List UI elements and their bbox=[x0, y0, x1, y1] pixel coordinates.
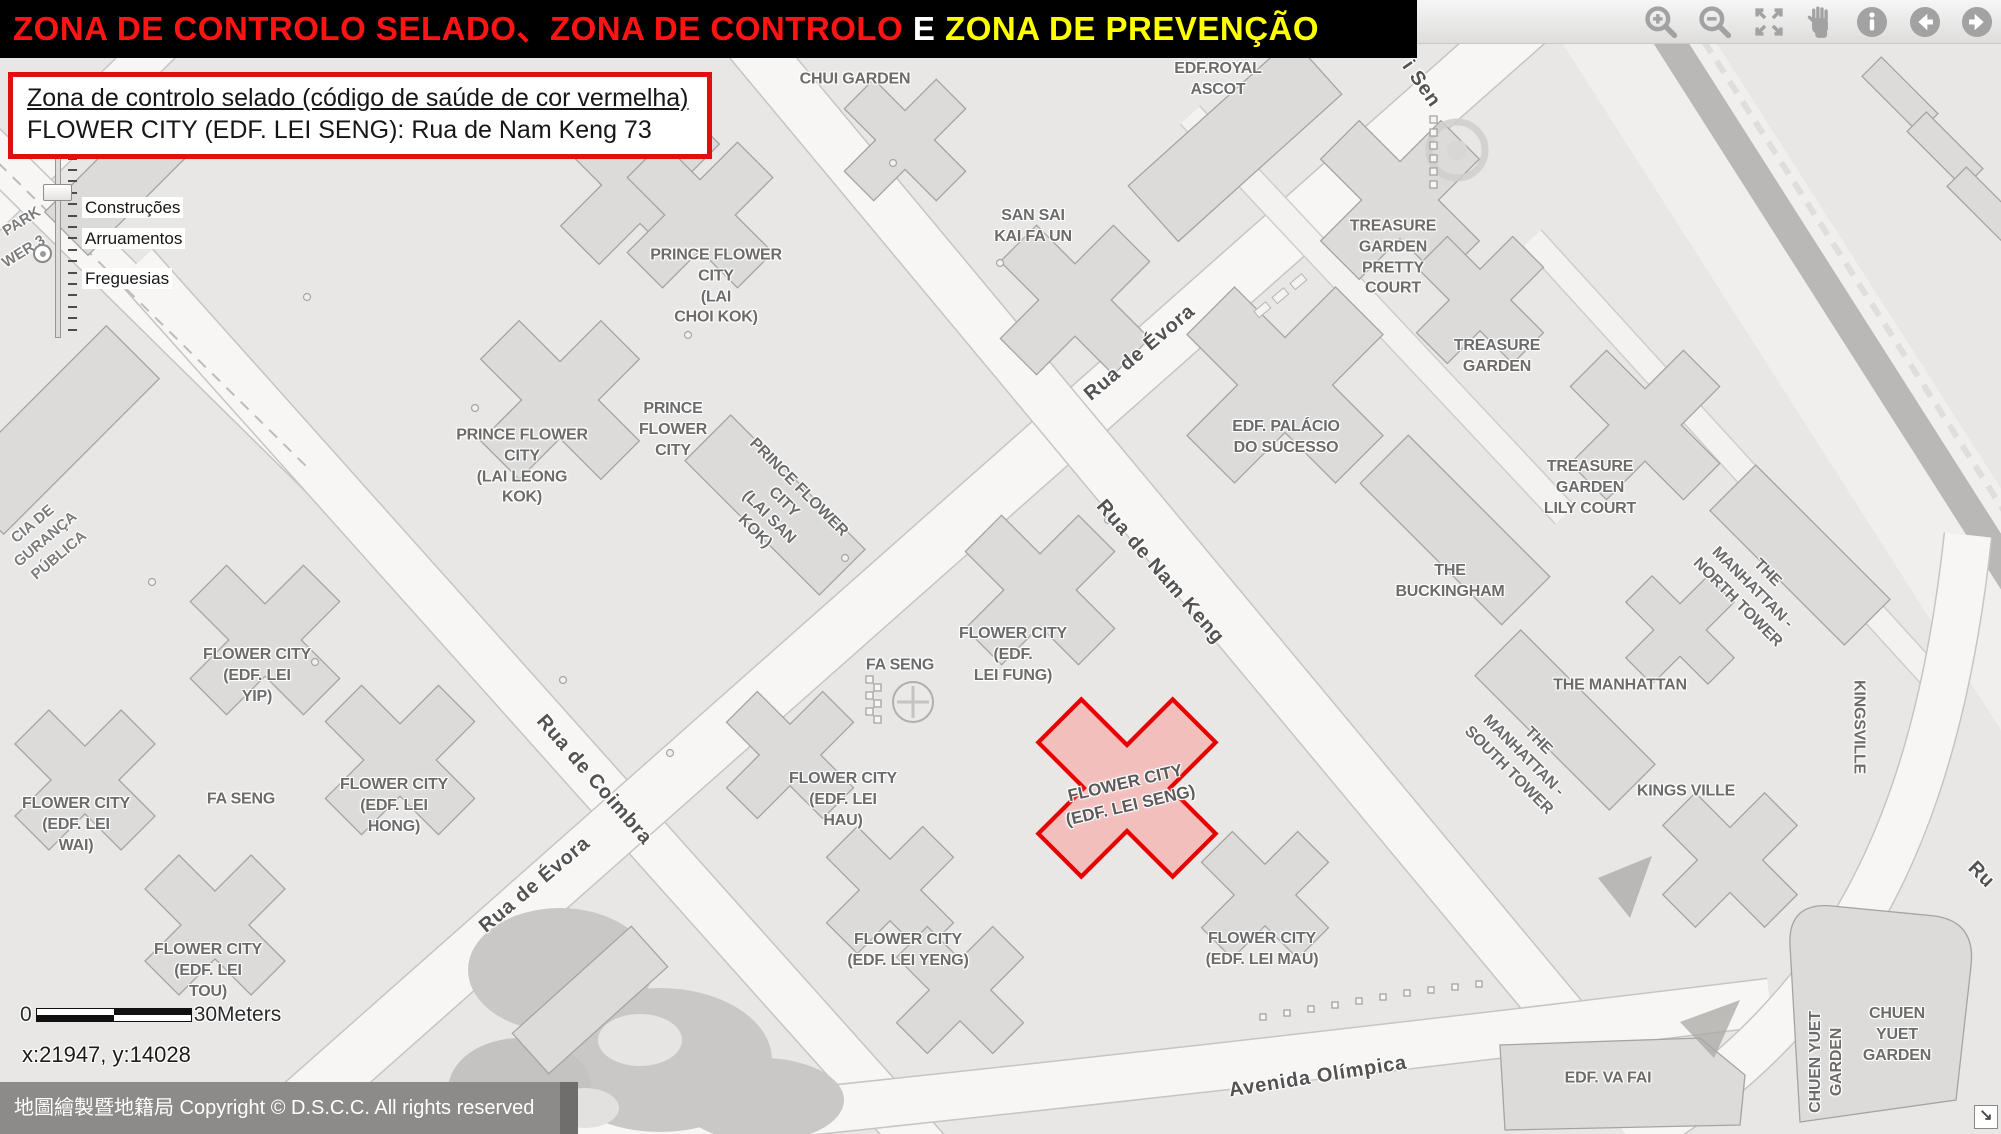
title-segment: ZONA DE PREVENÇÃO bbox=[935, 10, 1319, 47]
slider-tick bbox=[68, 283, 77, 285]
zoom-slider-handle[interactable] bbox=[43, 184, 72, 201]
next-view-icon bbox=[1958, 3, 1996, 41]
zoom-in-icon bbox=[1642, 3, 1680, 41]
identify-icon bbox=[1853, 3, 1891, 41]
slider-tick bbox=[68, 237, 77, 239]
sealed-zone-info-box: Zona de controlo selado (código de saúde… bbox=[8, 72, 712, 159]
scale-bar-graphic bbox=[36, 1008, 192, 1022]
map-canvas[interactable] bbox=[0, 0, 2001, 1134]
copyright-footer: 地圖繪製暨地籍局 Copyright © D.S.C.C. All rights… bbox=[0, 1082, 560, 1134]
title-bar: ZONA DE CONTROLO SELADO、ZONA DE CONTROLO… bbox=[0, 0, 1417, 58]
zoom-in-button[interactable] bbox=[1642, 3, 1680, 41]
slider-tick bbox=[68, 294, 77, 296]
slider-tick bbox=[68, 329, 77, 331]
previous-view-button[interactable] bbox=[1906, 3, 1944, 41]
previous-view-icon bbox=[1906, 3, 1944, 41]
zoom-out-icon bbox=[1696, 3, 1734, 41]
corner-resize-button[interactable]: ↘ bbox=[1974, 1105, 1998, 1129]
slider-tick bbox=[68, 215, 77, 217]
footer-end-cap bbox=[560, 1082, 578, 1134]
title-segment: ZONA DE CONTROLO SELADO、ZONA DE CONTROLO bbox=[13, 10, 913, 47]
scale-bar-start: 0 bbox=[20, 1003, 32, 1026]
slider-tick bbox=[68, 249, 77, 251]
legend-item-freguesias: Freguesias bbox=[82, 268, 172, 289]
legend-item-construcoes: Construções bbox=[82, 197, 183, 218]
pan-button[interactable] bbox=[1801, 3, 1839, 41]
legend-item-arruamentos: Arruamentos bbox=[82, 228, 185, 249]
slider-tick bbox=[68, 272, 77, 274]
slider-tick bbox=[68, 306, 77, 308]
scale-bar-end: 30Meters bbox=[194, 1003, 282, 1026]
slider-tick bbox=[68, 203, 77, 205]
map-toolbar bbox=[1417, 0, 2001, 44]
full-extent-icon bbox=[1750, 3, 1788, 41]
zoom-out-button[interactable] bbox=[1696, 3, 1734, 41]
pan-hand-icon bbox=[1801, 3, 1839, 41]
info-box-address: FLOWER CITY (EDF. LEI SENG): Rua de Nam … bbox=[27, 116, 652, 144]
map-application: CHUI GARDENEDF.ROYAL ASCOTSAN SAI KAI FA… bbox=[0, 0, 2001, 1134]
slider-tick bbox=[68, 169, 77, 171]
slider-detail-button[interactable] bbox=[33, 244, 52, 263]
slider-tick bbox=[68, 226, 77, 228]
full-extent-button[interactable] bbox=[1750, 3, 1788, 41]
identify-button[interactable] bbox=[1853, 3, 1891, 41]
slider-tick bbox=[68, 317, 77, 319]
cursor-coordinates: x:21947, y:14028 bbox=[22, 1042, 191, 1068]
slider-tick bbox=[68, 260, 77, 262]
scale-bar: 030Meters bbox=[20, 1004, 281, 1026]
info-box-heading: Zona de controlo selado (código de saúde… bbox=[27, 84, 689, 112]
next-view-button[interactable] bbox=[1958, 3, 1996, 41]
title-segment: E bbox=[913, 10, 936, 47]
slider-tick bbox=[68, 180, 77, 182]
